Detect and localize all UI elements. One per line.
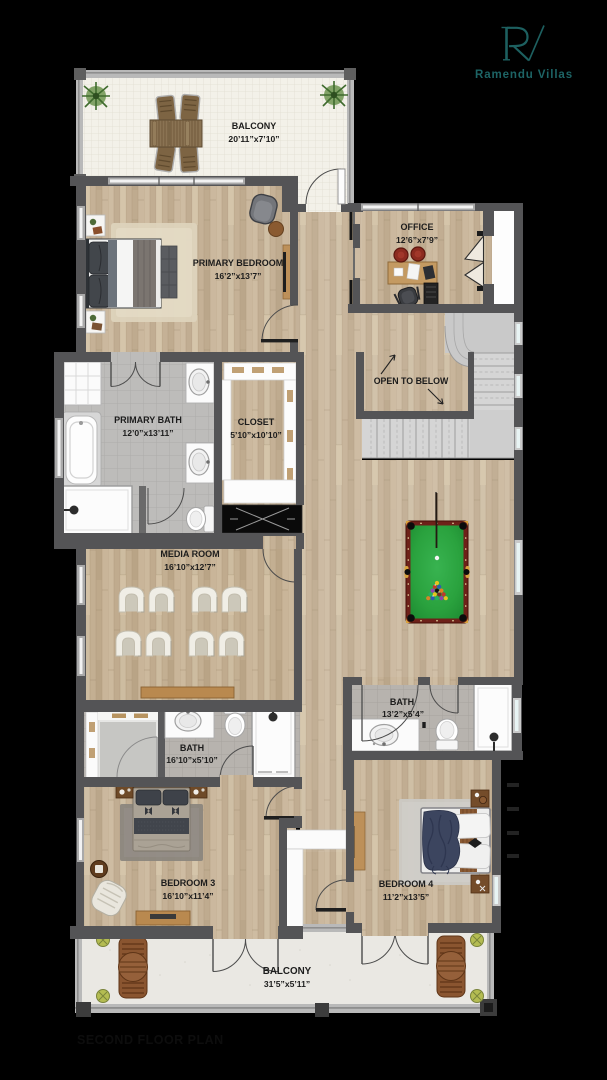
svg-text:13’2”x5’4”: 13’2”x5’4” — [382, 709, 424, 719]
svg-text:Ramendu Villas: Ramendu Villas — [475, 69, 573, 81]
svg-text:16’10”x12’7”: 16’10”x12’7” — [164, 562, 216, 572]
svg-text:16’10”x11’4”: 16’10”x11’4” — [162, 891, 213, 901]
svg-text:BATH: BATH — [390, 697, 414, 707]
svg-text:OFFICE: OFFICE — [401, 222, 434, 232]
svg-text:OPEN TO BELOW: OPEN TO BELOW — [374, 376, 449, 386]
svg-text:PRIMARY BATH: PRIMARY BATH — [114, 415, 182, 425]
svg-text:MEDIA ROOM: MEDIA ROOM — [160, 549, 219, 559]
svg-text:16’10”x5’10”: 16’10”x5’10” — [166, 755, 218, 765]
svg-text:16’2”x13’7”: 16’2”x13’7” — [215, 271, 262, 281]
svg-text:SECOND FLOOR PLAN: SECOND FLOOR PLAN — [77, 1033, 224, 1047]
svg-text:31’5”x5’11”: 31’5”x5’11” — [264, 979, 310, 989]
svg-text:PRIMARY BEDROOM: PRIMARY BEDROOM — [193, 258, 284, 268]
svg-text:BEDROOM 4: BEDROOM 4 — [379, 879, 434, 889]
svg-text:BALCONY: BALCONY — [232, 121, 277, 131]
svg-text:20’11”x7’10”: 20’11”x7’10” — [228, 134, 279, 144]
svg-text:5’10”x10’10”: 5’10”x10’10” — [230, 430, 282, 440]
svg-text:12’6”x7’9”: 12’6”x7’9” — [396, 235, 438, 245]
svg-text:11’2”x13’5”: 11’2”x13’5” — [383, 892, 429, 902]
svg-text:12’0”x13’11”: 12’0”x13’11” — [122, 428, 173, 438]
svg-text:BALCONY: BALCONY — [263, 966, 312, 977]
svg-text:CLOSET: CLOSET — [238, 417, 275, 427]
svg-text:BATH: BATH — [180, 743, 204, 753]
svg-text:BEDROOM 3: BEDROOM 3 — [161, 878, 216, 888]
